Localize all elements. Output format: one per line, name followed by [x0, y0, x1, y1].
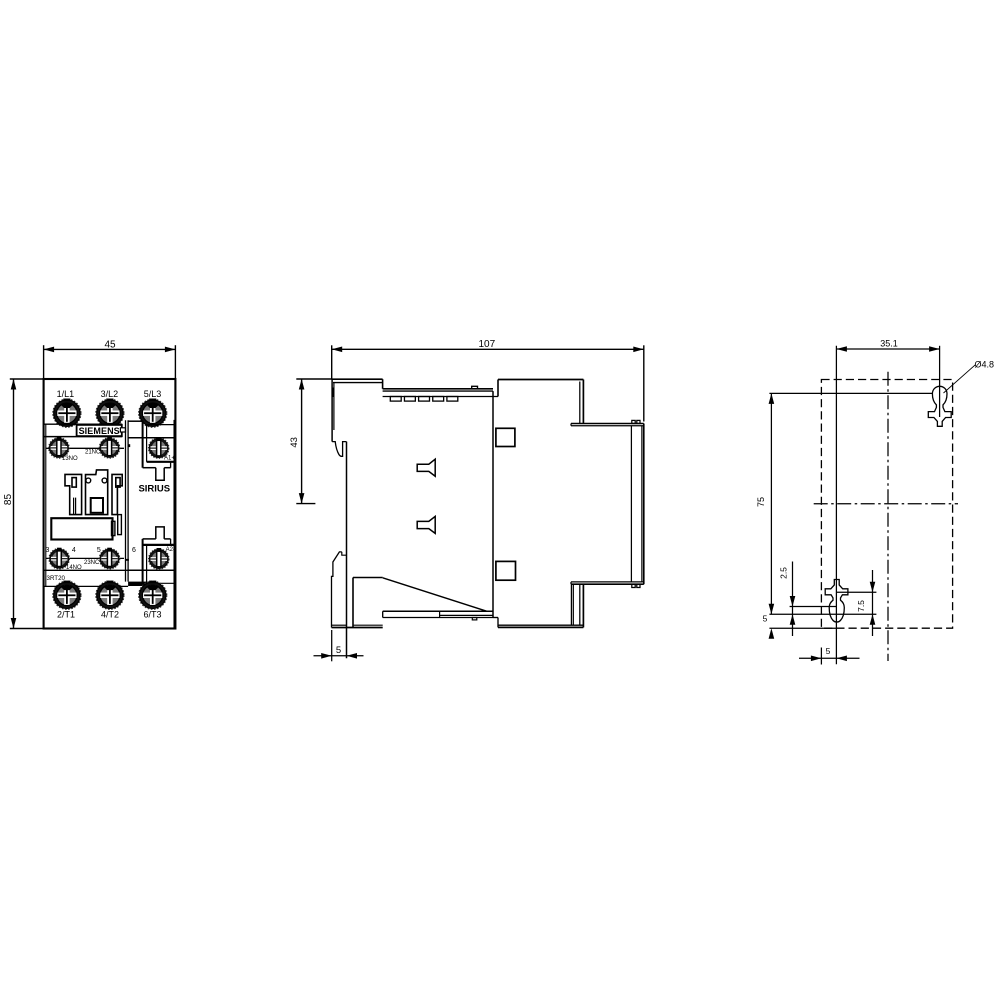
svg-text:45: 45: [104, 339, 116, 350]
svg-text:Ø4.8: Ø4.8: [975, 360, 995, 370]
svg-text:85: 85: [3, 494, 14, 506]
svg-text:5/L3: 5/L3: [144, 389, 162, 399]
svg-text:23NC: 23NC: [84, 560, 100, 566]
svg-text:5: 5: [97, 547, 101, 554]
svg-text:3: 3: [46, 547, 50, 554]
svg-text:1/L1: 1/L1: [57, 389, 75, 399]
svg-text:5: 5: [826, 646, 831, 656]
svg-text:35.1: 35.1: [880, 338, 898, 348]
svg-text:2.5: 2.5: [779, 567, 789, 579]
svg-text:6/T3: 6/T3: [143, 609, 161, 619]
svg-text:3RT20: 3RT20: [47, 575, 66, 582]
svg-text:6: 6: [132, 547, 136, 554]
svg-text:4/T2: 4/T2: [101, 609, 119, 619]
svg-text:5: 5: [336, 645, 341, 656]
svg-text:4: 4: [72, 547, 76, 554]
svg-text:A2-: A2-: [166, 547, 175, 553]
svg-text:75: 75: [756, 497, 766, 507]
svg-text:13NO: 13NO: [62, 456, 78, 462]
svg-text:43: 43: [289, 437, 300, 448]
svg-text:SIRIUS: SIRIUS: [138, 484, 170, 495]
svg-text:5: 5: [763, 613, 768, 623]
svg-text:2/T1: 2/T1: [57, 609, 75, 619]
svg-text:3/L2: 3/L2: [101, 389, 119, 399]
svg-text:21NC: 21NC: [85, 450, 101, 456]
svg-text:7.5: 7.5: [856, 600, 866, 612]
svg-text:107: 107: [478, 339, 495, 350]
svg-text:A1+: A1+: [164, 455, 175, 461]
svg-text:SIEMENS: SIEMENS: [79, 426, 120, 436]
